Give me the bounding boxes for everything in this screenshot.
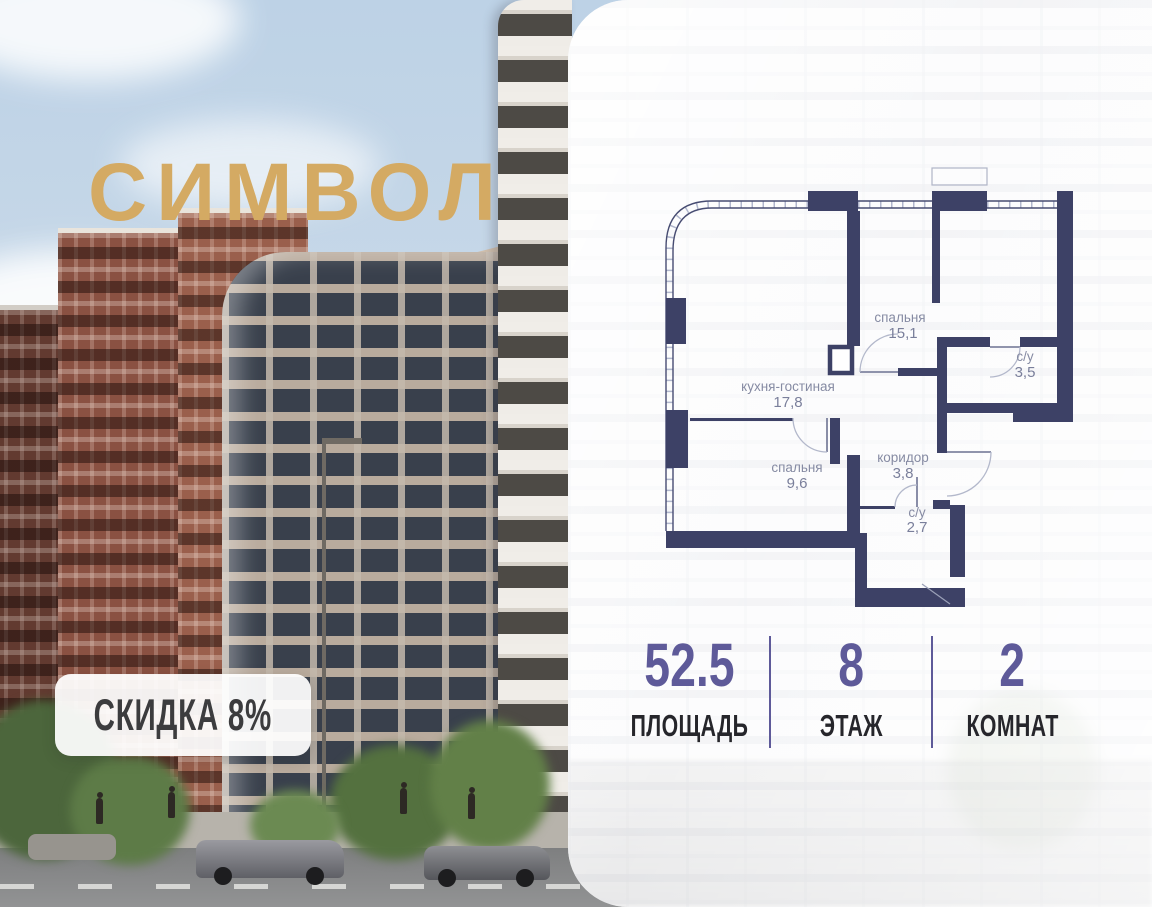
discount-badge-label: СКИДКА 8% <box>94 690 272 741</box>
shaft <box>830 347 852 373</box>
room-area-corridor: 3,8 <box>893 465 914 482</box>
plan-walls <box>666 191 1073 607</box>
room-labels: спальня 15,1 с/у 3,5 кухня-гостиная 17,8… <box>741 310 1035 536</box>
pedestrian <box>168 792 175 818</box>
discount-badge: СКИДКА 8% <box>55 674 311 756</box>
stat-rooms: 2 КОМНАТ <box>933 636 1092 748</box>
room-area-bath2: 2,7 <box>907 519 928 536</box>
room-name-bedroom1: спальня <box>874 310 925 325</box>
street-lamp <box>322 438 326 838</box>
stat-area-label: ПЛОЩАДЬ <box>631 708 749 743</box>
room-name-corridor: коридор <box>877 450 929 465</box>
window-lines <box>666 201 1057 531</box>
stat-floor-label: ЭТАЖ <box>820 708 883 743</box>
glazing-ticks <box>670 205 1058 532</box>
stat-area: 52.5 ПЛОЩАДЬ <box>610 636 769 748</box>
room-name-bath2: с/у <box>908 505 926 520</box>
stat-rooms-value: 2 <box>999 637 1025 696</box>
pedestrian <box>96 798 103 824</box>
project-logo: СИМВОЛ <box>88 146 505 240</box>
pedestrian <box>468 793 475 819</box>
car <box>196 840 344 878</box>
stat-area-value: 52.5 <box>645 637 735 696</box>
apartment-card[interactable]: спальня 15,1 с/у 3,5 кухня-гостиная 17,8… <box>568 0 1152 907</box>
pedestrian <box>400 788 407 814</box>
car <box>28 834 116 860</box>
stat-rooms-label: КОМНАТ <box>966 708 1058 743</box>
room-name-bedroom2: спальня <box>771 460 822 475</box>
car <box>424 846 550 880</box>
ac-ledge <box>932 168 987 185</box>
tree <box>430 720 550 850</box>
stat-floor: 8 ЭТАЖ <box>769 636 932 748</box>
room-area-bedroom2: 9,6 <box>787 475 808 492</box>
room-area-bath1: 3,5 <box>1015 364 1036 381</box>
room-name-bath1: с/у <box>1016 349 1034 364</box>
room-name-kitchen: кухня-гостиная <box>741 379 835 394</box>
listing-banner[interactable]: СИМВОЛ СКИДКА 8% <box>0 0 1152 907</box>
room-area-kitchen: 17,8 <box>773 394 802 411</box>
room-area-bedroom1: 15,1 <box>888 325 917 342</box>
apartment-stats: 52.5 ПЛОЩАДЬ 8 ЭТАЖ 2 КОМНАТ <box>610 636 1092 748</box>
floor-plan: спальня 15,1 с/у 3,5 кухня-гостиная 17,8… <box>650 160 1090 640</box>
stat-floor-value: 8 <box>838 637 864 696</box>
